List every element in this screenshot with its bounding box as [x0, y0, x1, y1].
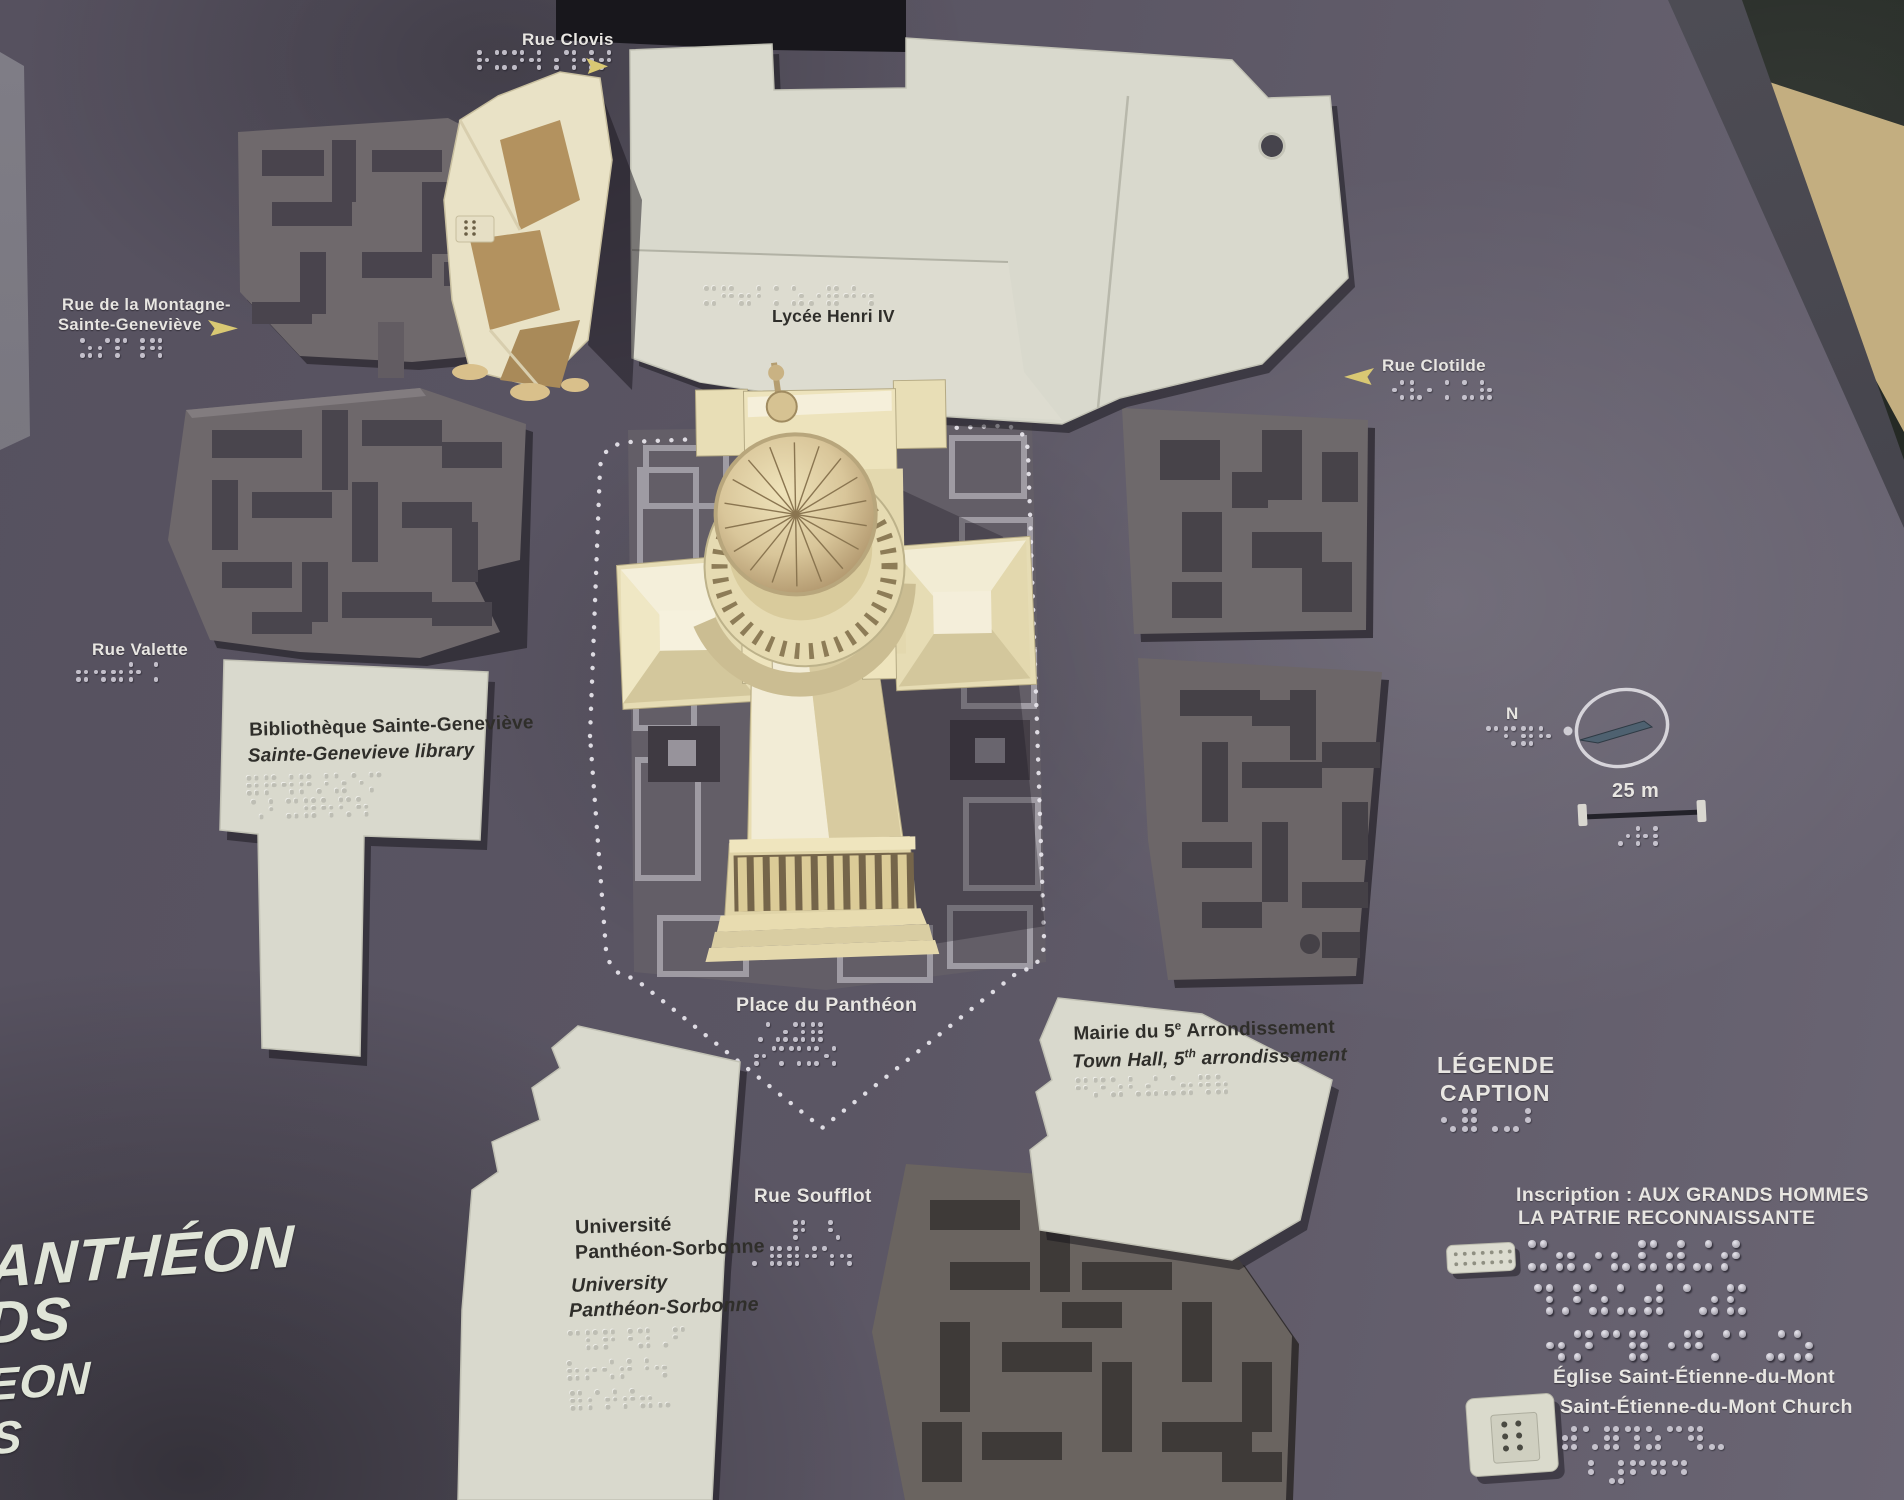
block-cluster-right-upper — [1122, 408, 1375, 642]
braille-rue-valette — [76, 662, 164, 682]
compass-north-label: N — [1506, 704, 1519, 724]
braille-scale — [1618, 826, 1671, 846]
braille-church-2 — [1588, 1460, 1693, 1484]
tactile-map-photo: Rue Clovis Rue de la Montagne- Sainte-Ge… — [0, 0, 1904, 1500]
braille-universite-3 — [570, 1387, 676, 1411]
braille-legend — [1441, 1108, 1546, 1132]
map-title-fragment-3: EON — [0, 1350, 92, 1411]
map-title-fragment-4: S — [0, 1409, 24, 1465]
scale-label: 25 m — [1612, 780, 1659, 803]
legend-inscription-2: LA PATRIE RECONNAISSANTE — [1518, 1207, 1815, 1230]
braille-compass — [1486, 726, 1556, 746]
scale-bar — [1577, 800, 1706, 826]
braille-rue-clotilde — [1392, 380, 1497, 400]
braille-place-2 — [754, 1046, 842, 1066]
braille-inscription-1 — [1528, 1240, 1748, 1271]
braille-inscription-3 — [1546, 1330, 1821, 1361]
braille-mairie — [1076, 1074, 1234, 1098]
label-place-du-pantheon: Place du Panthéon — [736, 994, 917, 1017]
legend-church-fr: Église Saint-Étienne-du-Mont — [1553, 1366, 1835, 1389]
block-cluster-left — [168, 388, 533, 666]
braille-universite-2 — [567, 1357, 673, 1381]
braille-bibliotheque-2 — [251, 796, 374, 819]
label-universite-fr-1: Université — [575, 1213, 672, 1239]
braille-soufflot-1 — [793, 1220, 846, 1240]
braille-soufflot-2 — [752, 1246, 857, 1266]
braille-bibliotheque-1 — [246, 772, 386, 796]
label-rue-clovis: Rue Clovis — [522, 30, 614, 50]
legend-church-en: Saint-Étienne-du-Mont Church — [1560, 1396, 1853, 1419]
label-universite-en-1: University — [571, 1271, 668, 1297]
block-cluster-right-lower — [1138, 658, 1389, 988]
braille-place-1 — [758, 1022, 828, 1042]
label-rue-soufflot: Rue Soufflot — [754, 1186, 872, 1208]
legend-inscription-1: Inscription : AUX GRANDS HOMMES — [1516, 1184, 1869, 1207]
label-rue-clotilde: Rue Clotilde — [1382, 356, 1486, 376]
braille-rue-montagne — [80, 338, 168, 358]
legend-title-en: CAPTION — [1440, 1080, 1551, 1107]
label-rue-valette: Rue Valette — [92, 640, 188, 660]
church-model — [444, 72, 642, 401]
label-lycee-henri-iv: Lycée Henri IV — [772, 306, 895, 327]
legend-title-fr: LÉGENDE — [1437, 1052, 1555, 1079]
braille-lycee — [704, 286, 879, 306]
braille-church-1 — [1562, 1426, 1730, 1450]
braille-universite-1 — [568, 1327, 691, 1351]
church-tile-icon — [1465, 1393, 1565, 1485]
inscription-swatch-icon — [1446, 1242, 1521, 1280]
label-rue-montagne-1: Rue de la Montagne- — [62, 296, 231, 315]
compass — [1564, 680, 1676, 776]
label-rue-montagne-2: Sainte-Geneviève — [58, 316, 202, 335]
braille-inscription-2 — [1534, 1284, 1754, 1315]
map-title-fragment-2: DS — [0, 1283, 73, 1358]
braille-rue-clovis-1 — [477, 50, 530, 70]
plate-lycee-henri-iv — [630, 38, 1355, 433]
